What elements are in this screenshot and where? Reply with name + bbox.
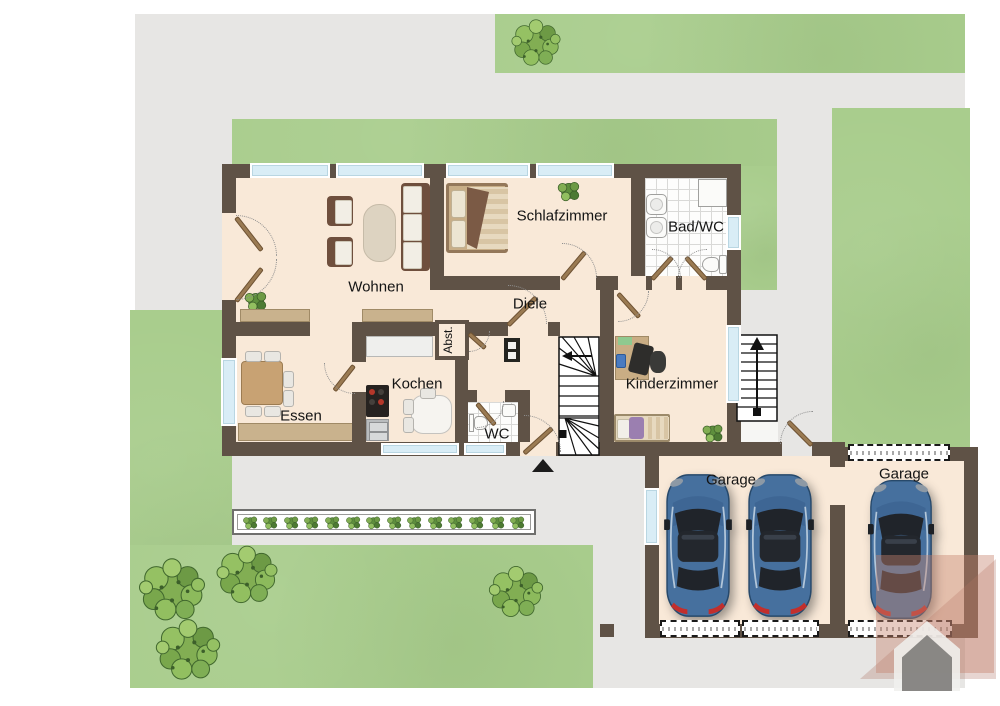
car bbox=[664, 470, 732, 620]
tree-icon bbox=[507, 14, 565, 72]
planter-plant-icon bbox=[509, 514, 526, 531]
wall bbox=[830, 505, 845, 638]
desk-chair bbox=[650, 351, 666, 373]
exterior-staircase bbox=[736, 334, 778, 422]
wall bbox=[631, 164, 645, 276]
garage-door bbox=[848, 620, 952, 637]
planter-plant-icon bbox=[242, 514, 259, 531]
washbasin bbox=[646, 194, 667, 215]
chair bbox=[264, 406, 281, 417]
planter-plant-icon bbox=[447, 514, 464, 531]
room-label-essen: Essen bbox=[280, 408, 322, 425]
window bbox=[446, 163, 530, 178]
chair bbox=[245, 406, 262, 417]
wall bbox=[430, 276, 560, 290]
planter-plant-icon bbox=[303, 514, 320, 531]
hand-basin bbox=[502, 404, 516, 417]
kitchen-sink bbox=[366, 419, 389, 441]
armchair bbox=[327, 237, 353, 267]
wall bbox=[596, 276, 618, 290]
planter-plant-icon bbox=[386, 514, 403, 531]
chair bbox=[403, 417, 414, 433]
room-label-kinderzimmer: Kinderzimmer bbox=[626, 376, 719, 393]
room-label-diele: Diele bbox=[513, 296, 547, 313]
kid-bed bbox=[614, 414, 670, 442]
entrance-arrow-icon bbox=[532, 459, 554, 472]
sofa bbox=[401, 183, 430, 271]
planter-plant-icon bbox=[365, 514, 382, 531]
window bbox=[336, 163, 424, 178]
sideboard bbox=[362, 309, 433, 322]
lawn-middle-band bbox=[232, 119, 777, 166]
car bbox=[746, 470, 814, 620]
wall bbox=[455, 390, 477, 402]
room-label-kochen: Kochen bbox=[392, 376, 443, 393]
double-bed bbox=[446, 183, 508, 253]
window bbox=[644, 488, 659, 545]
planter-box bbox=[232, 509, 536, 535]
window bbox=[464, 443, 506, 455]
wall bbox=[430, 164, 444, 276]
chair bbox=[283, 371, 294, 388]
computer bbox=[616, 354, 626, 368]
planter-plants bbox=[240, 514, 528, 531]
wall bbox=[741, 442, 782, 456]
houseplant-icon bbox=[556, 178, 582, 204]
lawn-right-column bbox=[832, 108, 970, 455]
kitchen-counter bbox=[366, 336, 433, 357]
coffee-table bbox=[363, 204, 396, 262]
tree-icon bbox=[211, 539, 283, 611]
sideboard bbox=[240, 309, 310, 322]
wall bbox=[222, 164, 236, 213]
washbasin bbox=[646, 217, 667, 238]
post bbox=[600, 624, 614, 637]
planter-plant-icon bbox=[324, 514, 341, 531]
sideboard bbox=[238, 423, 362, 441]
wall bbox=[352, 336, 366, 362]
lawn-bath-strip bbox=[737, 166, 777, 290]
chair bbox=[403, 399, 414, 415]
tree-icon bbox=[150, 612, 226, 688]
room-label-schlafzimmer: Schlafzimmer bbox=[517, 208, 608, 225]
dining-table bbox=[241, 361, 283, 405]
planter-plant-icon bbox=[262, 514, 279, 531]
toilet-tank bbox=[719, 255, 727, 274]
window bbox=[726, 215, 741, 250]
kitchen-table bbox=[411, 395, 452, 434]
garage-door bbox=[660, 620, 740, 637]
wall bbox=[706, 276, 741, 290]
chair bbox=[283, 390, 294, 407]
wall bbox=[505, 390, 518, 402]
room-label-garage-right: Garage bbox=[879, 466, 929, 483]
stove bbox=[366, 385, 389, 417]
wall bbox=[676, 276, 682, 290]
shower bbox=[698, 179, 727, 207]
room-label-bad: Bad/WC bbox=[668, 219, 724, 236]
planter-plant-icon bbox=[427, 514, 444, 531]
room-label-wohnen: Wohnen bbox=[348, 279, 404, 296]
wall bbox=[600, 290, 614, 442]
interior-staircase bbox=[558, 336, 600, 456]
wall bbox=[548, 322, 560, 336]
planter-plant-icon bbox=[468, 514, 485, 531]
wall bbox=[352, 392, 366, 442]
window bbox=[381, 443, 459, 455]
room-label-abst: Abst. bbox=[441, 326, 455, 353]
window bbox=[726, 325, 741, 403]
wall bbox=[964, 447, 978, 638]
window bbox=[536, 163, 614, 178]
tree-icon bbox=[484, 560, 548, 624]
floor-plan: Wohnen Schlafzimmer Bad/WC Diele Abst. K… bbox=[0, 0, 1000, 706]
planter-plant-icon bbox=[489, 514, 506, 531]
car bbox=[868, 476, 934, 622]
room-label-garage-left: Garage bbox=[706, 472, 756, 489]
wall bbox=[645, 456, 659, 638]
wall bbox=[236, 322, 310, 336]
chair bbox=[245, 351, 262, 362]
window bbox=[221, 358, 237, 426]
electrical-panel bbox=[504, 338, 520, 362]
lawn-top-strip bbox=[495, 14, 965, 73]
garage-door bbox=[848, 444, 950, 461]
armchair bbox=[327, 196, 353, 226]
mousepad bbox=[618, 337, 632, 345]
planter-plant-icon bbox=[283, 514, 300, 531]
window bbox=[250, 163, 330, 178]
planter-plant-icon bbox=[345, 514, 362, 531]
room-label-wc: WC bbox=[485, 426, 510, 443]
chair bbox=[264, 351, 281, 362]
wall bbox=[812, 442, 830, 456]
planter-plant-icon bbox=[406, 514, 423, 531]
garage-door bbox=[742, 620, 819, 637]
